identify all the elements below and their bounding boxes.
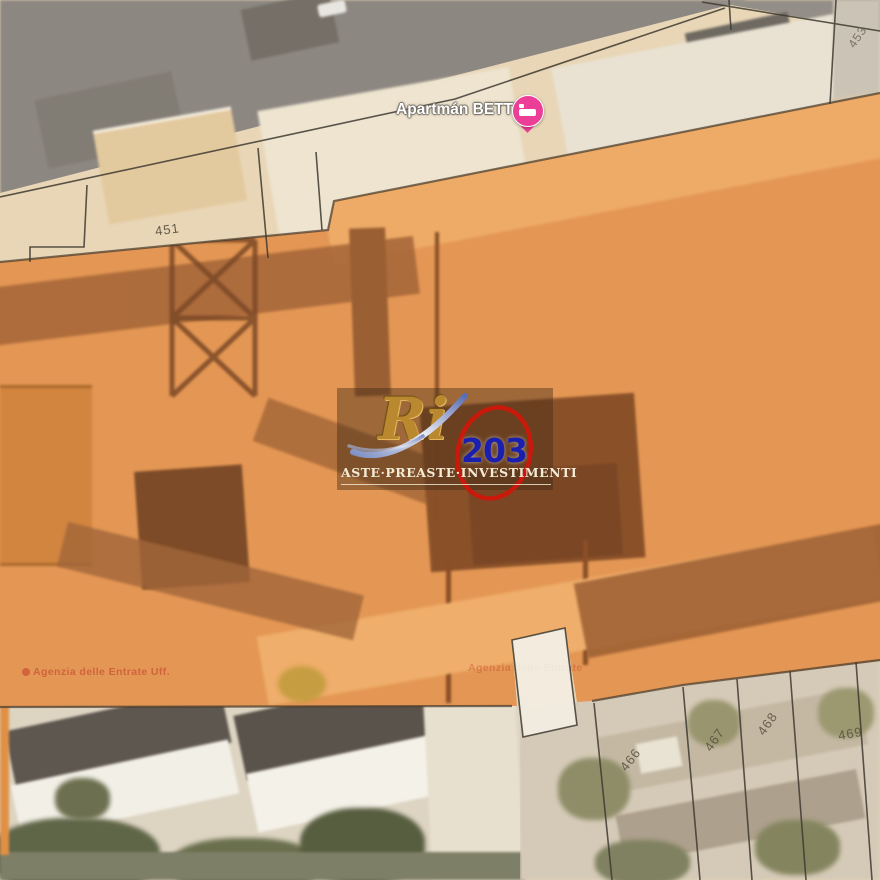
lodging-pin-icon[interactable] xyxy=(512,95,544,127)
watermark-brand: ASTE·PREASTE·INVESTIMENTI xyxy=(341,465,551,485)
poi-label: Apartmán BETTY xyxy=(396,101,523,119)
bed-pillow-icon xyxy=(519,104,524,108)
bed-icon xyxy=(519,109,536,116)
map-canvas[interactable]: Agenzia delle Entrate Uff. Agenzia delle… xyxy=(0,0,880,880)
